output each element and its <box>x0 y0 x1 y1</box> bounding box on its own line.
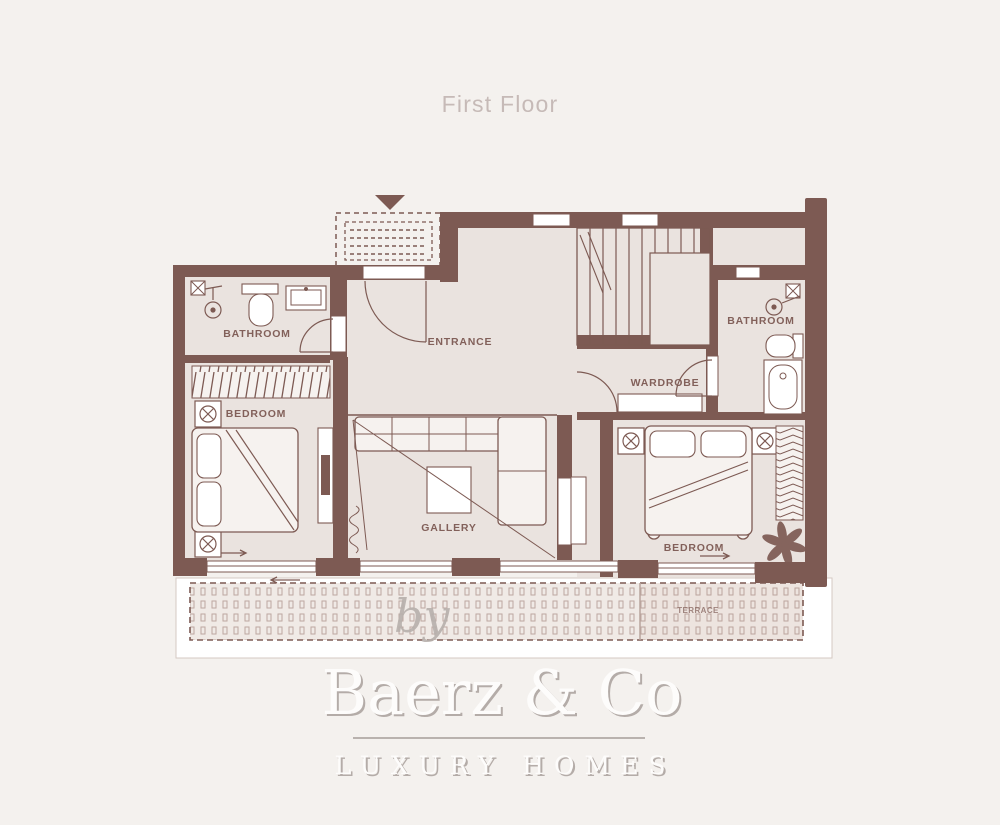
coffee-table-icon <box>427 467 471 513</box>
bathtub-icon <box>764 360 802 414</box>
page-title: First Floor <box>442 91 559 117</box>
room-label-bathroom-left: BATHROOM <box>223 328 290 340</box>
window <box>736 267 760 278</box>
lamp-icon <box>195 401 221 427</box>
lamp-icon <box>195 531 221 557</box>
room-label-entrance: ENTRANCE <box>428 336 493 348</box>
room-label-wardrobe: WARDROBE <box>631 377 700 389</box>
extractor-icon <box>786 284 800 298</box>
room-label-bedroom-left: BEDROOM <box>226 408 286 420</box>
room-label-bathroom-right: BATHROOM <box>727 315 794 327</box>
toilet-icon <box>766 334 803 358</box>
bed-icon <box>645 426 752 539</box>
watermark-brand: Baerz & Co <box>322 656 683 729</box>
gallery-door <box>558 477 586 545</box>
room-label-bedroom-right: BEDROOM <box>664 542 724 554</box>
wardrobe-strip-icon <box>192 366 330 398</box>
tv-unit-icon <box>318 428 333 523</box>
lamp-icon <box>618 428 644 454</box>
closet-icon <box>618 394 702 412</box>
window <box>533 214 570 226</box>
hanger-closet-icon <box>776 426 803 520</box>
watermark-by: by <box>394 589 450 643</box>
window <box>622 214 658 226</box>
sink-icon <box>286 286 326 310</box>
floor-plan: First Floor <box>0 0 1000 825</box>
lamp-icon <box>752 428 778 454</box>
watermark-tagline: LUXURY HOMES <box>335 751 676 780</box>
room-label-terrace: TERRACE <box>677 606 719 615</box>
room-label-gallery: GALLERY <box>421 522 476 534</box>
bed-icon <box>192 428 298 532</box>
extractor-icon <box>191 281 205 295</box>
floor-plan-page: First Floor <box>0 0 1000 825</box>
